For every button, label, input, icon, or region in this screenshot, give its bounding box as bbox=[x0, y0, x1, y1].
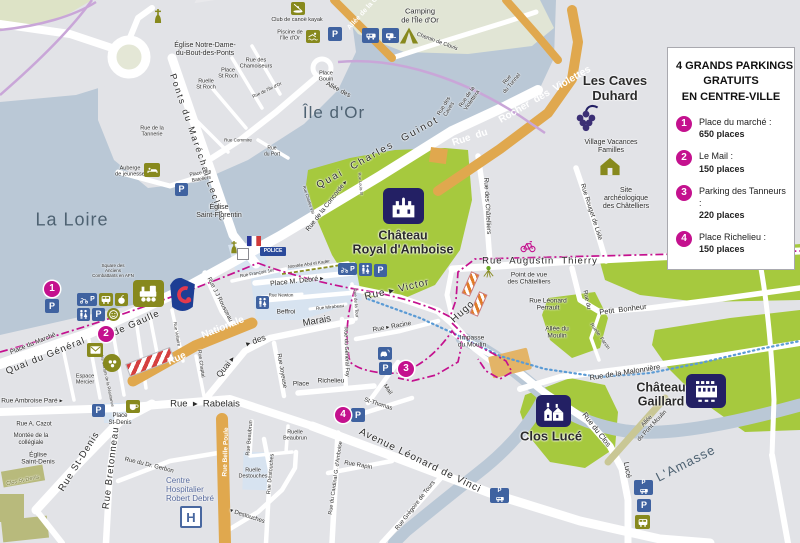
public-building-icon bbox=[237, 248, 249, 260]
chateau-gaillard-icon bbox=[686, 374, 726, 408]
bicycle-route-icon bbox=[516, 238, 540, 254]
church-icon bbox=[150, 4, 166, 30]
bus-icon bbox=[99, 293, 113, 306]
legend-item-name: Place du marché : bbox=[699, 116, 772, 128]
hostel-icon bbox=[144, 163, 160, 177]
viewpoint-icon bbox=[481, 264, 496, 279]
parking-marker-4: 4 bbox=[335, 407, 351, 423]
motorcycle-parking-icon: P bbox=[77, 293, 97, 306]
legend-item-places: 220 places bbox=[699, 209, 786, 221]
parking-icon: P bbox=[92, 404, 105, 417]
swimming-icon bbox=[306, 30, 320, 43]
legend-marker-4: 4 bbox=[676, 231, 692, 247]
market-apple-icon bbox=[115, 293, 128, 306]
legend-item: 2 Le Mail : 150 places bbox=[676, 150, 786, 174]
post-office-icon bbox=[87, 343, 103, 357]
parking-icon: P bbox=[379, 362, 392, 375]
bus-parking-icon: P bbox=[634, 480, 653, 495]
parking-legend: 4 GRANDS PARKINGS GRATUITS EN CENTRE-VIL… bbox=[667, 47, 795, 270]
police-station-label: POLICE bbox=[260, 247, 286, 256]
legend-item-name: Place Richelieu : bbox=[699, 231, 766, 243]
legend-marker-3: 3 bbox=[676, 185, 692, 201]
parking-icon: P bbox=[637, 499, 651, 512]
parking-marker-3: 3 bbox=[398, 361, 414, 377]
parking-icon: P bbox=[175, 183, 188, 196]
chateau-royal-icon bbox=[383, 188, 424, 224]
camper-parking-icon bbox=[362, 28, 379, 43]
toilets-icon bbox=[77, 308, 90, 321]
holiday-village-icon bbox=[596, 155, 624, 178]
motorcycle-parking-icon: P bbox=[338, 263, 357, 275]
french-flag-icon bbox=[247, 236, 261, 246]
legend-item: 1 Place du marché : 650 places bbox=[676, 116, 786, 140]
toilets-icon bbox=[359, 263, 372, 276]
parking-marker-2: 2 bbox=[98, 326, 114, 342]
toilets-icon bbox=[256, 296, 269, 309]
amboise-tourist-map: Église Notre-Dame- du-Bout-des-Ponts Clu… bbox=[0, 0, 800, 543]
tourist-office-logo bbox=[166, 276, 199, 313]
smiley-icon bbox=[107, 308, 120, 321]
legend-item: 4 Place Richelieu : 150 places bbox=[676, 231, 786, 255]
caravan-icon bbox=[382, 28, 399, 43]
legend-item-places: 150 places bbox=[699, 243, 766, 255]
legend-item-name: Parking des Tanneurs : bbox=[699, 185, 786, 209]
legend-item: 3 Parking des Tanneurs : 220 places bbox=[676, 185, 786, 221]
legend-marker-1: 1 bbox=[676, 116, 692, 132]
ev-charging-icon bbox=[378, 347, 392, 360]
legend-item-name: Le Mail : bbox=[699, 150, 745, 162]
bus-stop-icon bbox=[635, 515, 650, 529]
legend-marker-2: 2 bbox=[676, 150, 692, 166]
cafe-icon bbox=[126, 400, 140, 413]
tourist-train-icon bbox=[133, 280, 164, 307]
kayak-icon bbox=[291, 2, 305, 15]
parking-icon: P bbox=[45, 299, 59, 313]
clos-luce-icon bbox=[536, 395, 571, 427]
legend-item-places: 650 places bbox=[699, 128, 772, 140]
petanque-icon bbox=[103, 354, 121, 372]
parking-icon: P bbox=[351, 408, 365, 422]
legend-title: 4 GRANDS PARKINGS GRATUITS EN CENTRE-VIL… bbox=[676, 59, 786, 105]
parking-marker-1: 1 bbox=[44, 281, 60, 297]
camping-tent-icon bbox=[398, 26, 420, 46]
parking-icon: P bbox=[328, 27, 342, 41]
parking-icon: P bbox=[92, 308, 105, 321]
bus-parking-icon: P bbox=[490, 488, 509, 503]
hospital-icon: H bbox=[180, 506, 202, 528]
grapes-icon bbox=[570, 103, 602, 134]
parking-icon: P bbox=[374, 264, 387, 277]
legend-item-places: 150 places bbox=[699, 163, 745, 175]
